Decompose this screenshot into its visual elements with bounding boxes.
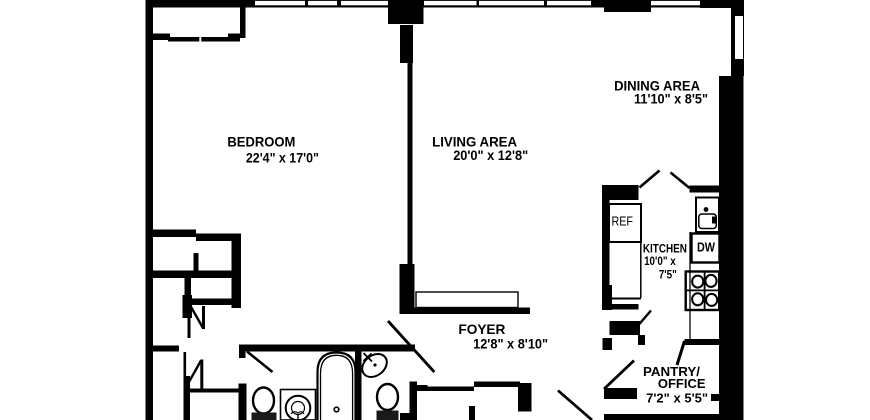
svg-text:FOYER: FOYER: [458, 321, 505, 337]
svg-text:11'10" x 8'5": 11'10" x 8'5": [634, 90, 708, 106]
svg-text:DW: DW: [697, 240, 716, 255]
svg-text:7'2" x 5'5": 7'2" x 5'5": [646, 391, 708, 406]
svg-text:22'4" x 17'0": 22'4" x 17'0": [246, 150, 319, 166]
svg-text:10'0" x: 10'0" x: [644, 254, 676, 268]
svg-text:7'5": 7'5": [659, 268, 677, 282]
svg-text:REF: REF: [612, 214, 634, 229]
svg-text:BEDROOM: BEDROOM: [227, 133, 295, 149]
svg-text:OFFICE: OFFICE: [658, 376, 706, 391]
svg-text:20'0" x 12'8": 20'0" x 12'8": [453, 147, 528, 163]
svg-text:12'8" x 8'10": 12'8" x 8'10": [473, 336, 548, 352]
